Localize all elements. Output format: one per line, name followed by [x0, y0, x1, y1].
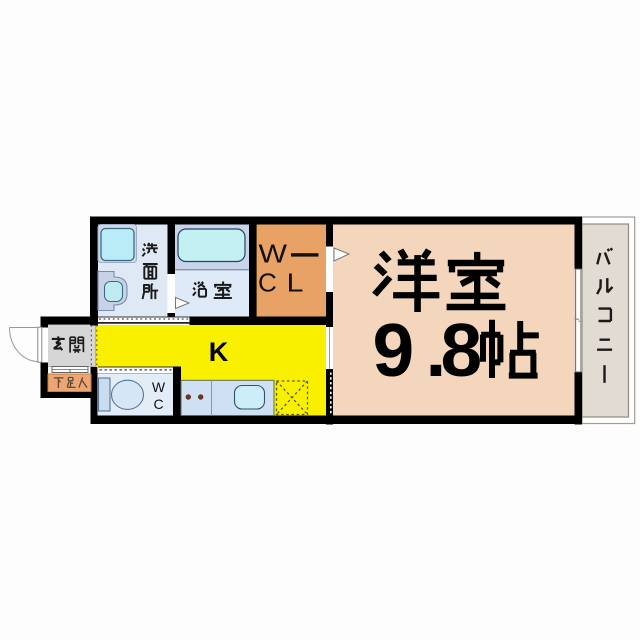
svg-text:8: 8	[441, 308, 483, 392]
svg-text:L: L	[287, 268, 304, 298]
svg-text:W: W	[259, 239, 288, 269]
svg-text:C: C	[258, 268, 277, 298]
svg-text:C: C	[153, 396, 163, 412]
svg-text:9: 9	[373, 308, 415, 392]
svg-text:W: W	[152, 379, 166, 395]
svg-text:K: K	[209, 337, 229, 367]
